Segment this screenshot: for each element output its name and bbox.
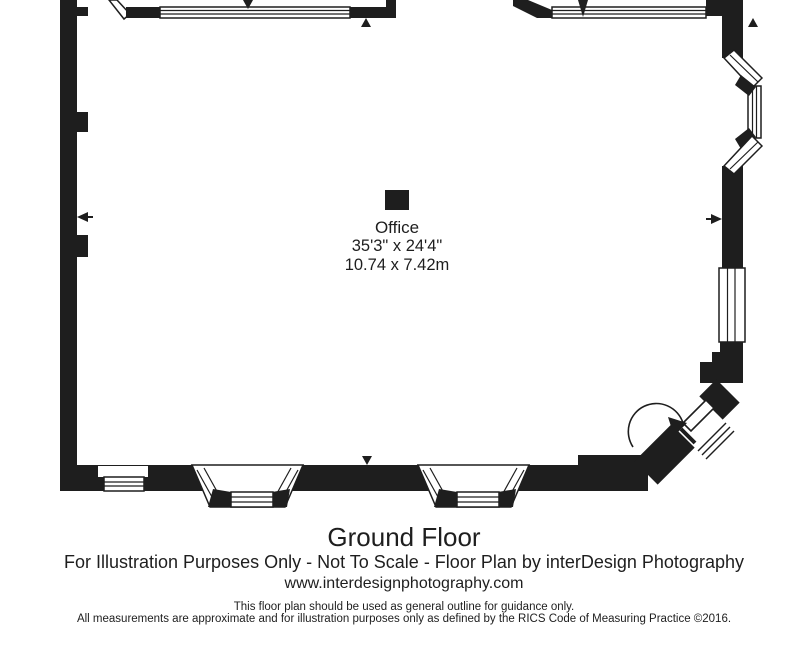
entry-steps — [698, 423, 734, 459]
marker-bottom-wall — [362, 456, 372, 465]
right-bay-window — [722, 46, 762, 174]
website-url: www.interdesignphotography.com — [0, 575, 808, 593]
room-label: Office 35'3" x 24'4" 10.74 x 7.42m — [0, 218, 794, 274]
marker-top-2 — [361, 18, 371, 27]
bottom-bay-window-1 — [192, 465, 303, 507]
bottom-window — [98, 466, 148, 491]
top-bay-window-1 — [109, 0, 396, 19]
room-dimensions-metric: 10.74 x 7.42m — [0, 256, 794, 275]
bottom-wall — [60, 455, 648, 491]
disclaimer-line-2: All measurements are approximate and for… — [0, 613, 808, 626]
right-wall-window — [719, 268, 745, 342]
top-bay-window-2 — [513, 0, 706, 18]
room-dimensions-imperial: 35'3" x 24'4" — [0, 237, 794, 256]
disclaimer-line-1: This floor plan should be used as genera… — [0, 601, 808, 614]
floor-title: Ground Floor — [0, 523, 808, 551]
floor-plan-page: Office 35'3" x 24'4" 10.74 x 7.42m Groun… — [0, 0, 808, 665]
marker-top-4 — [748, 18, 758, 27]
bottom-bay-window-2 — [418, 465, 529, 507]
room-name: Office — [0, 218, 794, 237]
door-leaf — [683, 400, 714, 431]
column — [385, 190, 409, 210]
credit-line: For Illustration Purposes Only - Not To … — [0, 552, 808, 572]
